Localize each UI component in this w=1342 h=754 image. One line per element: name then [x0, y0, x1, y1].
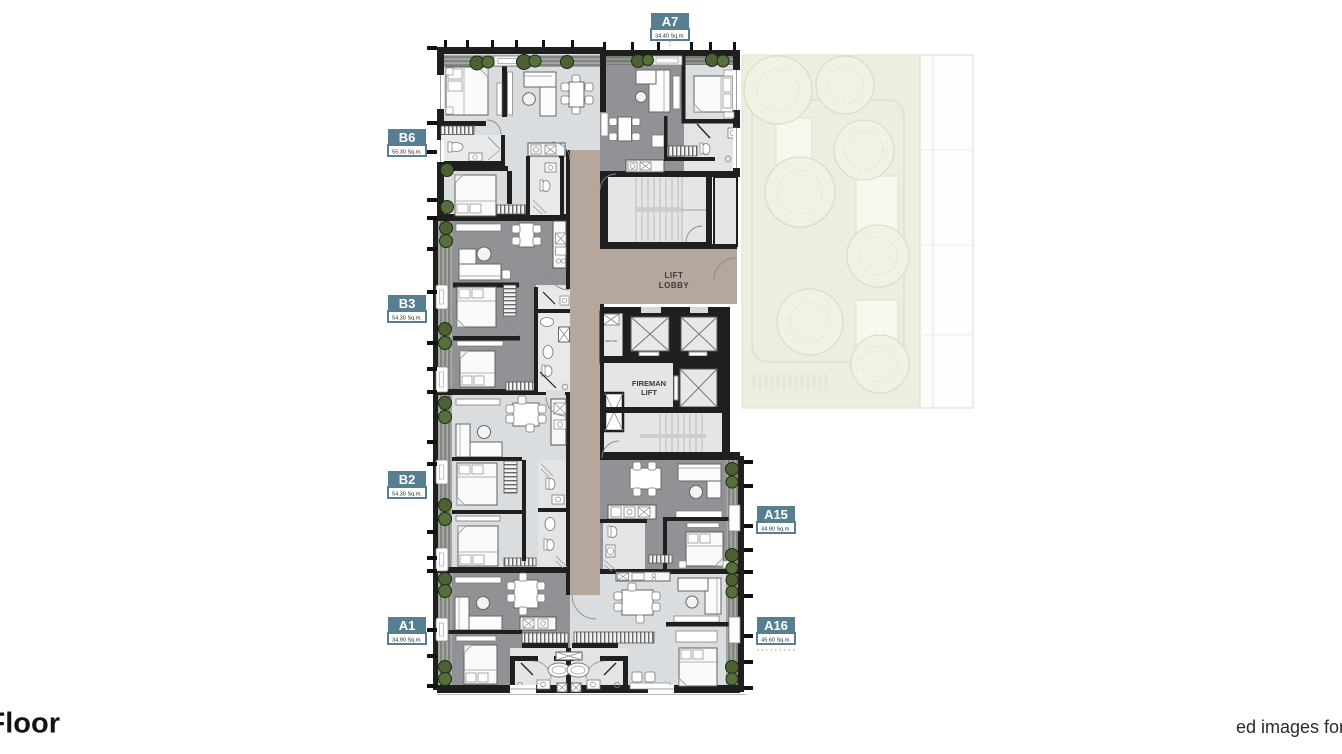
svg-text:LOBBY: LOBBY	[659, 281, 690, 290]
svg-text:A7: A7	[662, 14, 679, 29]
svg-text:34.90 Sq.m.: 34.90 Sq.m.	[761, 527, 791, 533]
svg-text:B3: B3	[399, 296, 416, 311]
svg-text:B6: B6	[399, 130, 416, 145]
svg-text:54.30 Sq.m.: 54.30 Sq.m.	[392, 492, 422, 498]
svg-text:A16: A16	[764, 618, 788, 633]
svg-text:55.30 Sq.m.: 55.30 Sq.m.	[392, 150, 422, 156]
svg-text:54.30 Sq.m.: 54.30 Sq.m.	[392, 316, 422, 322]
svg-text:34.40 Sq.m.: 34.40 Sq.m.	[655, 34, 685, 40]
svg-text:34.90 Sq.m.: 34.90 Sq.m.	[392, 638, 422, 644]
svg-text:A15: A15	[764, 507, 788, 522]
svg-text:JANITOR: JANITOR	[605, 339, 617, 343]
svg-text:45.60 Sq.m.: 45.60 Sq.m.	[761, 638, 791, 644]
svg-text:Floor: Floor	[0, 708, 60, 740]
svg-text:A1: A1	[399, 618, 416, 633]
svg-text:LIFT: LIFT	[641, 388, 657, 397]
svg-text:ed images for: ed images for	[1236, 717, 1342, 737]
svg-text:LIFT: LIFT	[665, 271, 684, 280]
svg-text:FIREMAN: FIREMAN	[632, 379, 666, 388]
svg-text:B2: B2	[399, 472, 416, 487]
